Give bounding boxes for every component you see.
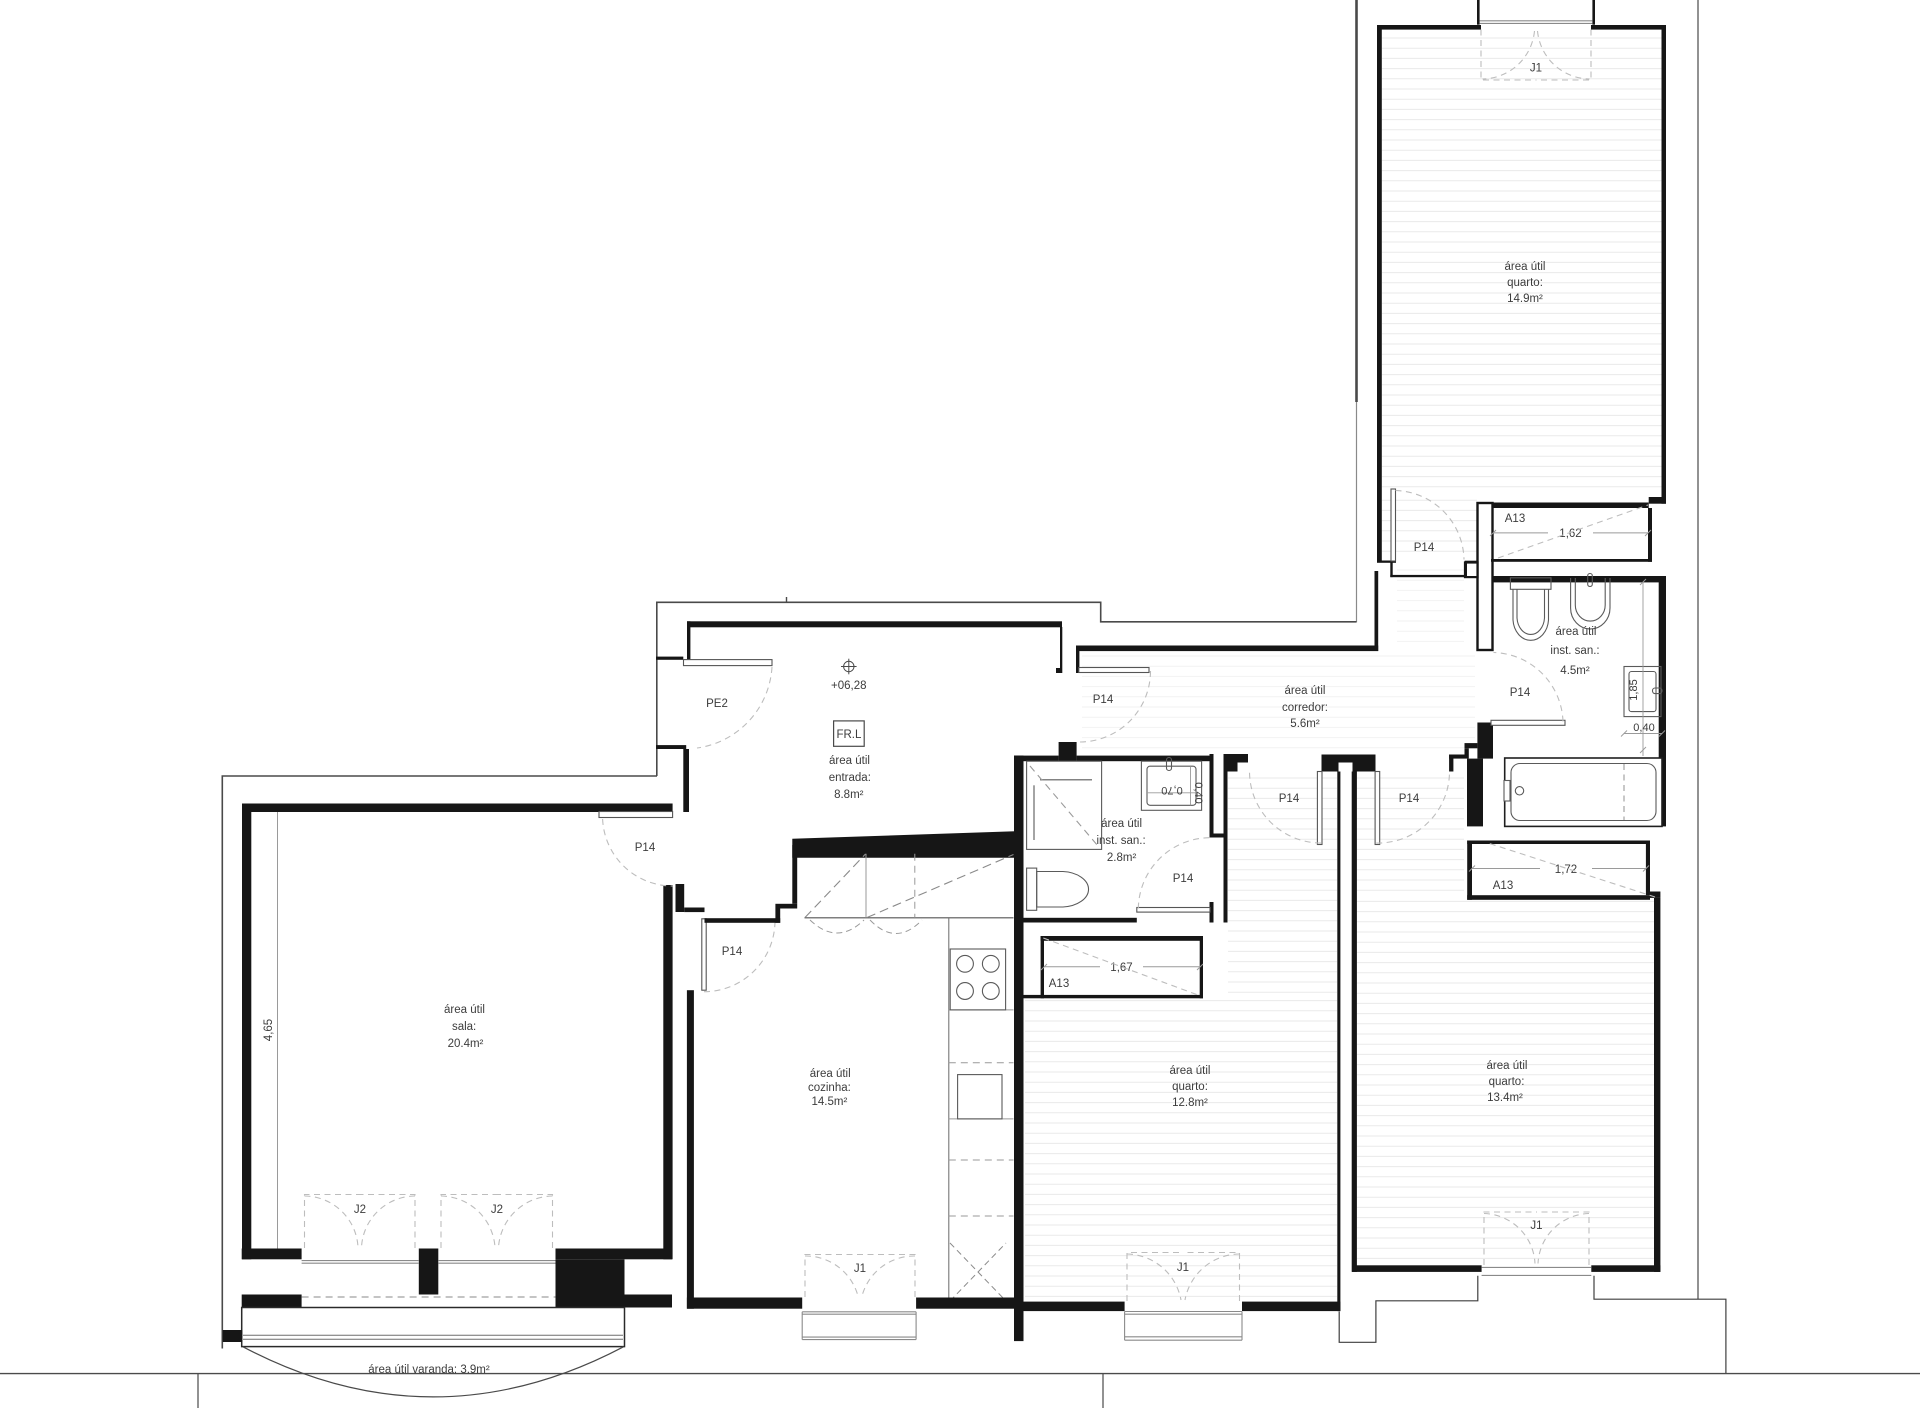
svg-text:1,85: 1,85: [1628, 679, 1640, 700]
svg-text:FR.L: FR.L: [836, 729, 862, 741]
svg-text:5.6m²: 5.6m²: [1290, 718, 1320, 730]
svg-text:P14: P14: [635, 842, 656, 854]
svg-text:P14: P14: [1279, 793, 1300, 805]
svg-text:entrada:: entrada:: [829, 772, 871, 784]
svg-text:área útil: área útil: [1556, 626, 1597, 638]
svg-text:J2: J2: [491, 1204, 503, 1216]
svg-text:quarto:: quarto:: [1172, 1081, 1208, 1093]
svg-text:0,40: 0,40: [1633, 722, 1654, 734]
svg-text:14.9m²: 14.9m²: [1507, 293, 1543, 305]
svg-text:área útil: área útil: [1505, 261, 1546, 273]
svg-text:4.5m²: 4.5m²: [1560, 665, 1590, 677]
svg-text:cozinha:: cozinha:: [808, 1082, 851, 1094]
svg-text:P14: P14: [722, 946, 743, 958]
svg-text:sala:: sala:: [452, 1021, 476, 1033]
svg-text:J2: J2: [354, 1204, 366, 1216]
svg-text:13.4m²: 13.4m²: [1487, 1092, 1523, 1104]
svg-text:14.5m²: 14.5m²: [812, 1096, 848, 1108]
svg-text:PE2: PE2: [706, 698, 728, 710]
svg-text:P14: P14: [1510, 687, 1531, 699]
svg-text:A13: A13: [1049, 978, 1069, 990]
svg-text:P14: P14: [1414, 542, 1435, 554]
svg-text:J1: J1: [1177, 1262, 1189, 1274]
svg-text:quarto:: quarto:: [1489, 1076, 1525, 1088]
svg-text:área útil: área útil: [1487, 1060, 1528, 1072]
svg-text:A13: A13: [1493, 880, 1513, 892]
svg-text:A13: A13: [1505, 513, 1525, 525]
svg-text:20.4m²: 20.4m²: [448, 1038, 484, 1050]
svg-text:corredor:: corredor:: [1282, 702, 1328, 714]
svg-text:inst. san.:: inst. san.:: [1096, 835, 1145, 847]
svg-text:1,72: 1,72: [1555, 864, 1577, 876]
svg-text:área útil: área útil: [810, 1068, 851, 1080]
svg-text:J1: J1: [1530, 1220, 1542, 1232]
svg-text:área útil: área útil: [1101, 818, 1142, 830]
svg-text:inst. san.:: inst. san.:: [1550, 645, 1599, 657]
svg-text:quarto:: quarto:: [1507, 277, 1543, 289]
svg-text:8.8m²: 8.8m²: [834, 789, 864, 801]
svg-text:4,65: 4,65: [263, 1019, 275, 1041]
svg-text:área útil varanda: 3.9m²: área útil varanda: 3.9m²: [368, 1364, 490, 1376]
svg-text:área útil: área útil: [1285, 685, 1326, 697]
svg-text:P14: P14: [1093, 694, 1114, 706]
svg-text:0,70: 0,70: [1161, 784, 1182, 796]
svg-text:J1: J1: [1530, 63, 1542, 75]
svg-text:J1: J1: [854, 1263, 866, 1275]
svg-text:12.8m²: 12.8m²: [1172, 1097, 1208, 1109]
svg-text:+06,28: +06,28: [831, 680, 867, 692]
svg-text:área útil: área útil: [444, 1004, 485, 1016]
svg-text:P14: P14: [1399, 793, 1420, 805]
svg-text:área útil: área útil: [1170, 1065, 1211, 1077]
svg-text:P14: P14: [1173, 873, 1194, 885]
svg-text:0,40: 0,40: [1192, 782, 1204, 803]
svg-text:área útil: área útil: [829, 755, 870, 767]
svg-text:2.8m²: 2.8m²: [1107, 852, 1137, 864]
